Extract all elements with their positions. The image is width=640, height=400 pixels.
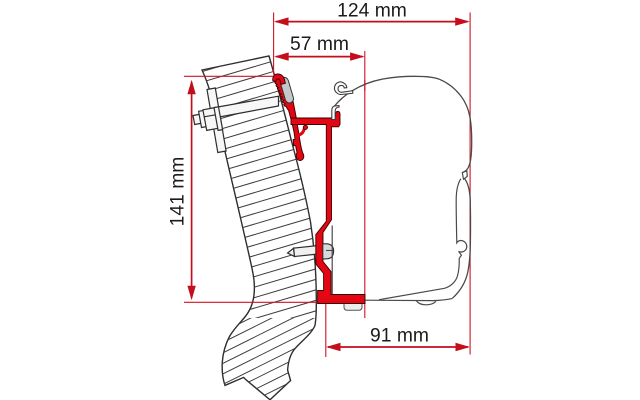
svg-text:91 mm: 91 mm [370,326,429,347]
svg-text:57 mm: 57 mm [290,34,349,55]
svg-text:141 mm: 141 mm [168,157,189,227]
svg-text:124 mm: 124 mm [337,0,407,21]
